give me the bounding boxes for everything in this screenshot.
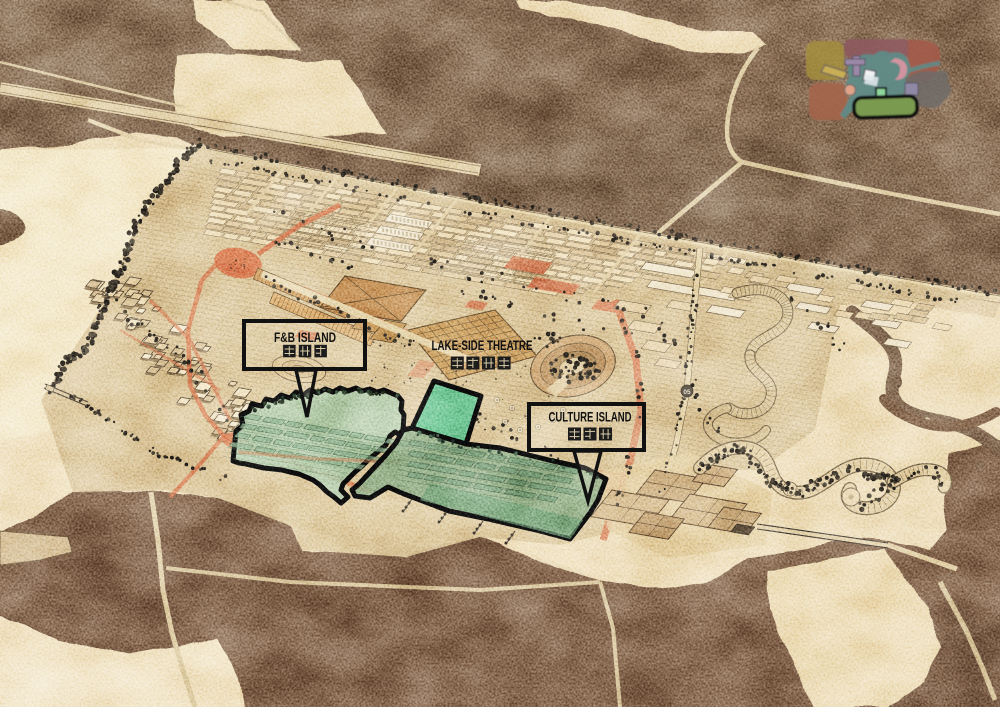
svg-text:LAKE-SIDE THEATRE: LAKE-SIDE THEATRE xyxy=(432,338,533,353)
svg-text:F&B ISLAND: F&B ISLAND xyxy=(274,330,336,345)
svg-text:05: 05 xyxy=(683,389,691,396)
svg-text:CULTURE ISLAND: CULTURE ISLAND xyxy=(549,410,632,425)
